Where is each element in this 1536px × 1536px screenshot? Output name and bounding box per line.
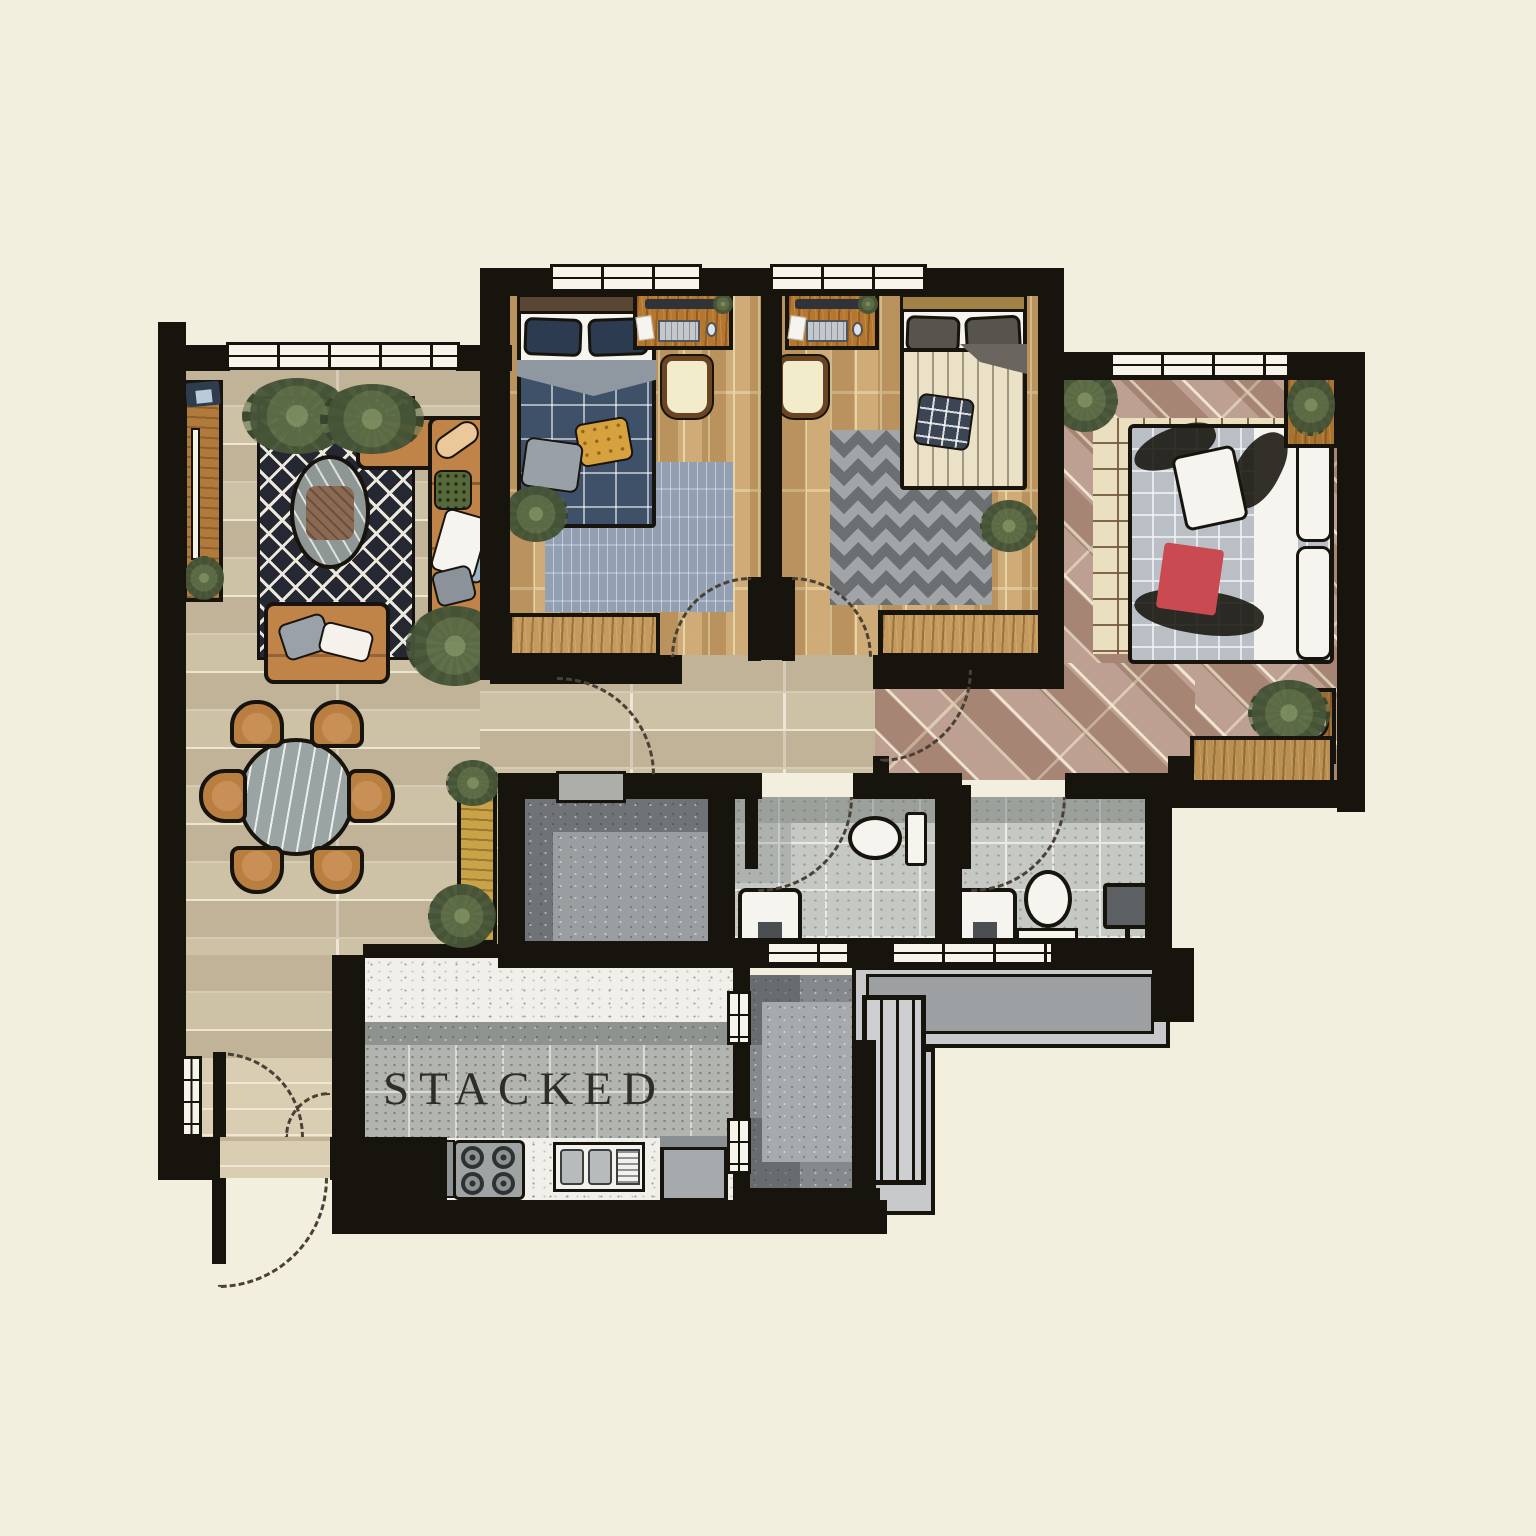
bathroom1-toilet-bowl <box>848 816 902 860</box>
entrance-outer-door-swing <box>218 1178 328 1288</box>
living-room-window <box>226 342 460 370</box>
bedroom2-navy-pillow <box>913 392 976 451</box>
wall-left <box>158 322 186 1178</box>
wall-kitchen-left <box>332 955 365 1147</box>
bedroom1-yellow-pillow <box>574 416 635 469</box>
bedroom1-gray-pillow <box>520 436 584 494</box>
coffee-table-tray <box>306 486 354 540</box>
bathroom1-vent-window <box>766 941 850 965</box>
bedroom1-mouse <box>706 322 717 337</box>
wall-utility-right <box>852 1040 876 1192</box>
master-window <box>1110 352 1290 378</box>
dining-chair <box>230 846 284 894</box>
shelter-floor-light <box>553 832 708 941</box>
stove-burner <box>461 1172 484 1195</box>
entrance-inner-door-leaf <box>213 1052 226 1137</box>
bedroom2-monitor <box>795 299 865 309</box>
bedroom1-paper <box>635 315 654 341</box>
bedroom2-window <box>770 264 927 292</box>
bedroom1-window <box>550 264 702 292</box>
bedroom2-chair <box>778 356 828 418</box>
refrigerator-handle <box>660 1136 728 1150</box>
bedroom2-headboard <box>900 294 1027 312</box>
bathroom2-door-leaf <box>958 785 971 869</box>
master-wardrobe <box>1190 736 1334 784</box>
bedroom2-mouse <box>852 322 863 337</box>
bedroom2-paper <box>787 315 806 341</box>
console-paper <box>195 389 212 404</box>
wall-shelter-left <box>498 773 525 967</box>
bedroom1-chair <box>662 356 712 418</box>
wall-kitchen-corner <box>332 1137 447 1234</box>
bedroom1-wardrobe <box>508 613 660 657</box>
wall-bedroom1-bottom <box>490 655 682 684</box>
bedroom1-desk-plant <box>713 294 733 314</box>
master-red-blanket <box>1156 542 1225 616</box>
wall-bedroom1-left <box>480 268 510 680</box>
master-side-pillow <box>1296 546 1332 660</box>
wall-ledge-cap <box>1152 948 1194 1022</box>
bedroom2-keyboard <box>806 320 848 342</box>
sofa-green-pillow <box>434 470 472 510</box>
window-plant-right <box>320 384 424 454</box>
bathroom2-toilet-bowl <box>1024 870 1072 928</box>
kitchen-backsplash <box>363 1022 733 1045</box>
wall-bedroom2-right <box>1038 268 1064 687</box>
kitchen-service-window-top <box>727 991 751 1045</box>
wall-shelter-right <box>708 773 735 967</box>
stove-burner <box>492 1146 515 1169</box>
kitchen-service-window-bottom <box>727 1118 751 1174</box>
bathroom1-door-leaf <box>745 785 758 869</box>
wall-shelter-bottom <box>498 941 733 968</box>
stove-burner <box>461 1146 484 1169</box>
utility-floor-light <box>762 1002 852 1162</box>
bedroom2-wardrobe <box>878 610 1058 658</box>
entrance-side-panel <box>181 1056 202 1137</box>
floor-plan-canvas: STACKED <box>0 0 1536 1536</box>
master-planter-plant <box>1287 374 1335 436</box>
wall-bath-top-c <box>1065 773 1147 799</box>
stove-burner <box>492 1172 515 1195</box>
bedroom1-plant <box>504 486 568 542</box>
dining-chair <box>310 846 364 894</box>
wall-bottom-left-a <box>158 1137 220 1180</box>
kitchen-sink-basin <box>560 1149 584 1185</box>
wall-bedroom-divider <box>761 296 782 660</box>
dining-chair <box>230 700 284 748</box>
wall-master-bottom <box>1177 780 1365 808</box>
entry-plant-bottom <box>428 884 496 948</box>
kitchen-sink-basin <box>588 1149 612 1185</box>
wall-right <box>1337 380 1365 812</box>
console-plant <box>184 556 224 600</box>
bedroom2-plant <box>980 500 1038 552</box>
kitchen-floor-label: STACKED <box>383 1062 666 1116</box>
dining-chair <box>199 769 247 823</box>
tv-screen <box>191 428 200 560</box>
shelter-door-leaf <box>556 771 626 803</box>
bedroom1-monitor <box>645 299 717 309</box>
bathroom1-toilet-tank <box>905 812 927 866</box>
entry-plant-top <box>446 760 500 806</box>
bedroom1-keyboard <box>658 320 700 342</box>
kitchen-sink-drainer <box>616 1149 640 1185</box>
wall-utility-bottom <box>733 1188 880 1216</box>
dining-chair <box>310 700 364 748</box>
dining-table <box>237 738 355 856</box>
bedroom2-desk-plant <box>858 294 878 314</box>
door-threshold-floor <box>218 1141 330 1178</box>
dining-chair <box>347 769 395 823</box>
bathroom2-vent-window <box>891 941 1054 965</box>
wall-top-left <box>186 345 230 371</box>
bedroom1-pillow <box>523 317 582 357</box>
